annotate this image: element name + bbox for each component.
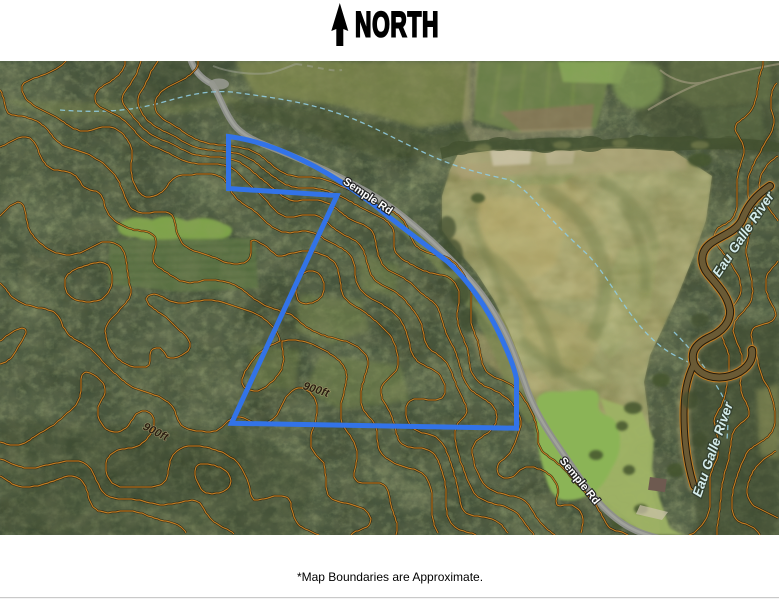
svg-text:NORTH: NORTH [355, 6, 439, 45]
svg-text:*Map Boundaries are Approximat: *Map Boundaries are Approximate. [297, 570, 483, 584]
